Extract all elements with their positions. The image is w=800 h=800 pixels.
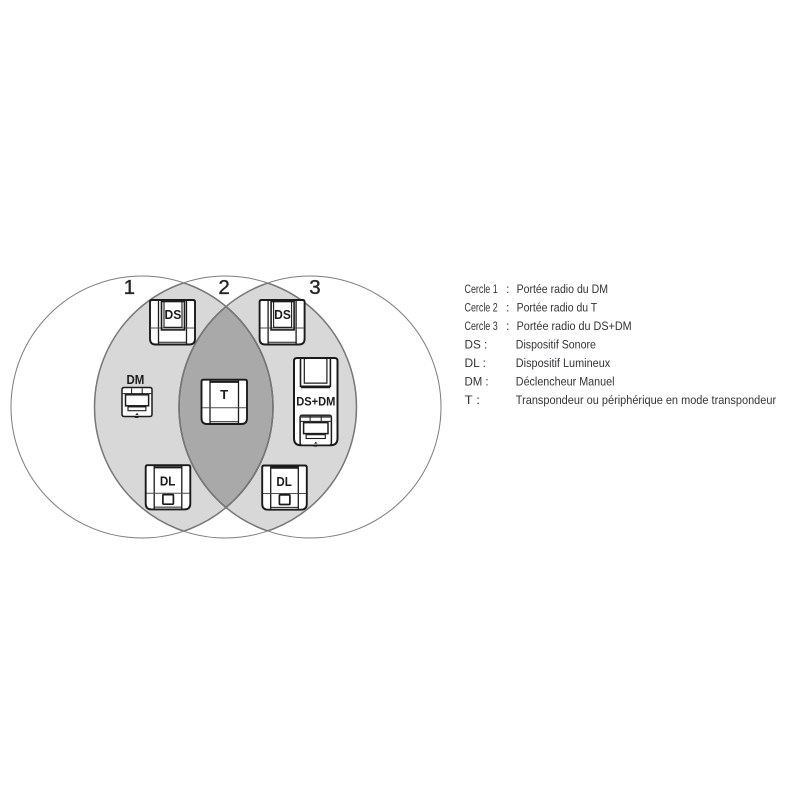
svg-text:Déclencheur Manuel: Déclencheur Manuel: [516, 374, 615, 388]
svg-text:Transpondeur ou périphérique e: Transpondeur ou périphérique en mode tra…: [516, 393, 776, 407]
svg-text:Portée radio du DM: Portée radio du DM: [517, 282, 608, 296]
svg-text:1: 1: [124, 276, 135, 299]
svg-text:DM :: DM :: [465, 374, 489, 388]
svg-text:Dispositif Sonore: Dispositif Sonore: [516, 337, 596, 351]
svg-text:T :: T :: [465, 393, 481, 407]
svg-text:DS: DS: [165, 307, 182, 322]
svg-text:DL :: DL :: [465, 356, 487, 370]
svg-text:DL: DL: [160, 474, 176, 489]
svg-text::: :: [506, 319, 509, 333]
svg-text:DS: DS: [274, 307, 291, 322]
svg-text:Portée radio du DS+DM: Portée radio du DS+DM: [517, 319, 632, 333]
svg-text::: :: [506, 300, 509, 314]
svg-text:3: 3: [309, 276, 320, 299]
svg-text:Portée radio du T: Portée radio du T: [517, 300, 598, 314]
svg-text:Cercle 2: Cercle 2: [465, 300, 498, 314]
svg-text::: :: [506, 282, 509, 296]
svg-text:DS :: DS :: [465, 337, 488, 351]
svg-text:Cercle 1: Cercle 1: [465, 282, 498, 296]
svg-text:DL: DL: [276, 474, 292, 489]
svg-text:T: T: [220, 387, 228, 402]
svg-text:Dispositif Lumineux: Dispositif Lumineux: [516, 356, 611, 370]
svg-text:DS+DM: DS+DM: [296, 394, 335, 408]
svg-text:Cercle 3: Cercle 3: [465, 319, 498, 333]
svg-text:2: 2: [218, 276, 229, 299]
svg-text:DM: DM: [127, 372, 145, 387]
